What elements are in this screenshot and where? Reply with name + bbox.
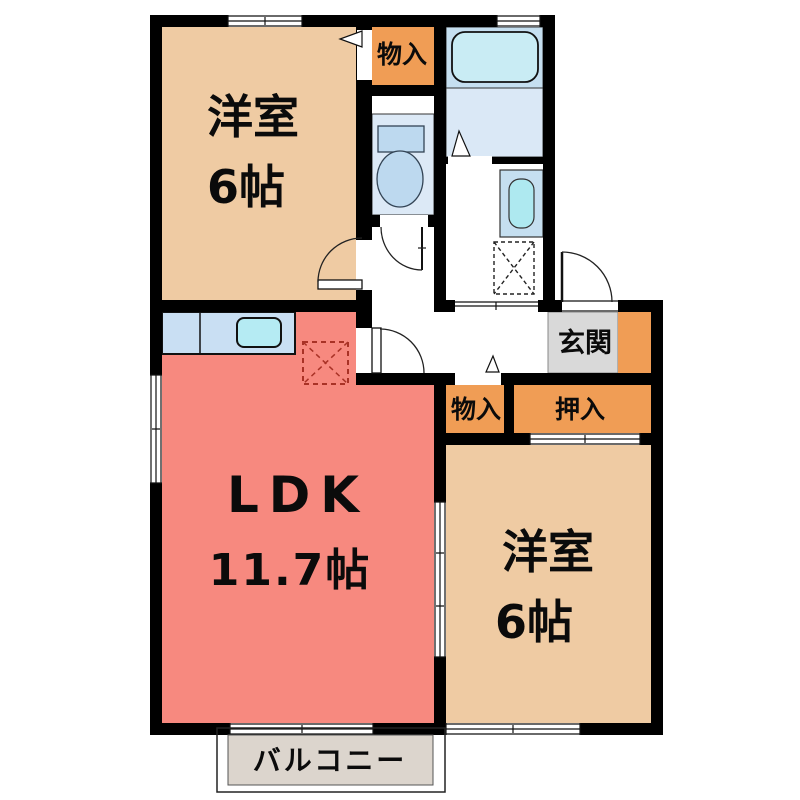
ldk-size: 11.7帖 [209,545,372,596]
bedroom-top-size: 6帖 [207,160,285,214]
bedroom-top-label: 洋室 [207,90,299,144]
sliding-door-washroom [455,300,538,312]
window-ldk-bottom [230,723,373,735]
bathtub-icon [452,32,538,82]
window-bedroom-bottom [446,723,580,735]
wall-right-lower [651,300,663,735]
ldk-door-opening [356,328,372,373]
wall-column-divider-upper [434,15,446,312]
toilet-bowl-icon [377,151,423,207]
storage-mid-label: 物入 [451,395,501,424]
wall-top [150,15,553,27]
entrance-label: 玄関 [558,327,612,359]
entrance-threshold [562,300,618,312]
bath-door-opening [448,156,492,165]
storage-mid-opening [455,373,501,385]
entrance-side-floor [618,312,651,373]
kitchen-sink [237,318,281,347]
window-bathroom [497,15,540,27]
ldk-label: LDK [227,466,369,524]
closet-label: 押入 [555,395,605,424]
sliding-door-ldk-bedroom [434,502,446,657]
hallway-vertical-floor [372,227,434,312]
hallway-lower-floor [372,312,548,373]
wall-right-upper [543,15,555,312]
wall-bedroom-top-bottom [150,300,372,312]
bedroom-top-door-leaf [318,280,362,289]
toilet-door-opening [380,215,428,227]
window-ldk-left [150,375,162,483]
bedroom-bottom-size: 6帖 [495,595,573,649]
balcony-label: バルコニー [253,744,407,777]
ldk-door-leaf [372,328,381,373]
sliding-door-closet [530,433,640,445]
wall-closet-divider [504,385,514,433]
floorplan-drawing: 洋室 6帖 LDK 11.7帖 洋室 6帖 物入 物入 押入 玄関 バルコニー [0,0,800,800]
toilet-tank-icon [378,126,424,152]
window-bedroom-top [228,15,302,27]
washbasin-bowl-icon [509,179,534,228]
wall-closet-row-top [356,373,663,385]
bedroom-bottom-label: 洋室 [502,525,594,579]
storage-toilet-gap [372,96,434,114]
wall-storage-top-bottom [372,85,434,96]
storage-top-label: 物入 [377,40,427,69]
floorplan-canvas: 洋室 6帖 LDK 11.7帖 洋室 6帖 物入 物入 押入 玄関 バルコニー [0,0,800,800]
bedroom-bottom-floor [446,445,651,723]
